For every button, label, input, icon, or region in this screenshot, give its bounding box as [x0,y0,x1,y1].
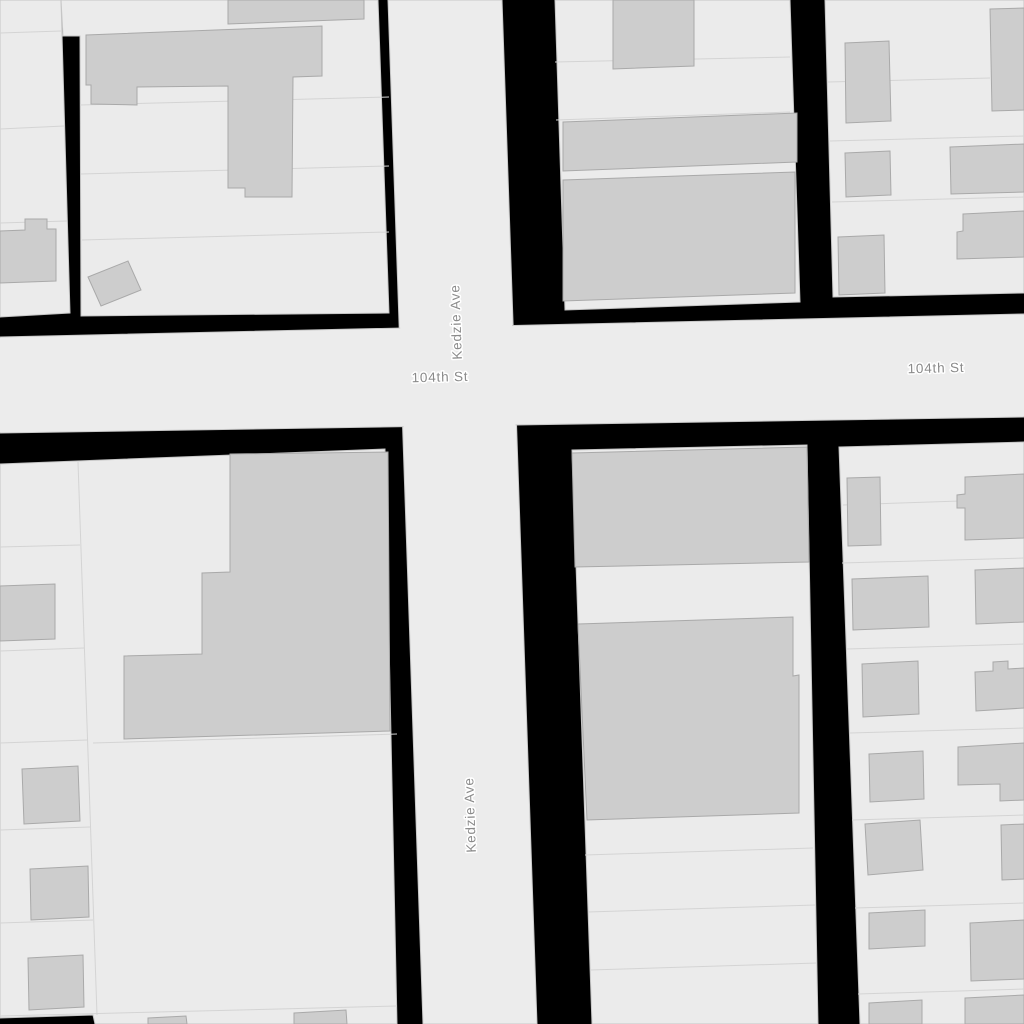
building [563,113,797,171]
building [572,447,809,567]
building [1001,824,1024,880]
building [294,1010,347,1024]
map-canvas: Kedzie Ave Kedzie Ave 104th St 104th St [0,0,1024,1024]
building [869,751,924,802]
building [852,576,929,630]
building [578,617,799,820]
map-viewport[interactable]: Kedzie Ave Kedzie Ave 104th St 104th St [0,0,1024,1024]
building [845,41,891,123]
building [28,955,84,1010]
building [838,235,885,295]
street-label-kedzie-ave-lower: Kedzie Ave [461,777,479,853]
street-label-104th-st-right: 104th St [907,360,964,376]
building [862,661,919,717]
building [865,820,923,875]
building [845,151,891,197]
building [957,474,1024,540]
building [950,144,1024,194]
building [148,1016,187,1024]
building [965,995,1024,1024]
building [869,910,925,949]
building [613,0,694,69]
building [990,8,1024,111]
building [957,211,1024,259]
building [22,766,80,824]
building [847,477,881,546]
street-label-kedzie-ave-upper: Kedzie Ave [447,284,465,360]
building [869,1000,922,1024]
street-label-104th-st-left: 104th St [411,369,468,385]
building [975,568,1024,624]
building [563,172,795,301]
building [0,584,55,641]
building [30,866,89,920]
building [970,920,1024,981]
